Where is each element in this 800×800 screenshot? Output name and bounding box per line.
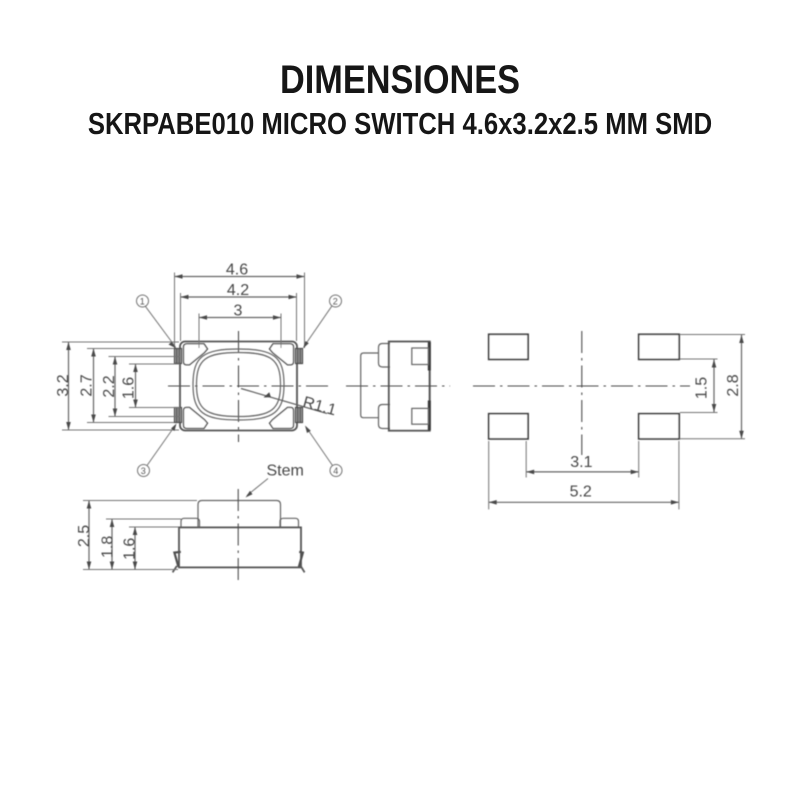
svg-text:4.6: 4.6	[226, 261, 248, 278]
svg-text:1.6: 1.6	[121, 538, 138, 560]
svg-text:3: 3	[234, 303, 243, 320]
svg-text:2.2: 2.2	[101, 375, 118, 397]
svg-text:3: 3	[141, 466, 146, 476]
svg-text:1: 1	[140, 296, 145, 306]
svg-text:3.2: 3.2	[55, 374, 72, 396]
svg-text:R1.1: R1.1	[301, 394, 338, 419]
svg-text:1.6: 1.6	[121, 377, 138, 399]
svg-text:2: 2	[333, 296, 338, 306]
svg-text:3.1: 3.1	[570, 454, 592, 471]
svg-text:5.2: 5.2	[570, 484, 592, 501]
svg-text:2.8: 2.8	[725, 374, 742, 396]
svg-text:2.7: 2.7	[79, 374, 96, 396]
svg-text:1.8: 1.8	[100, 536, 117, 558]
svg-text:2.5: 2.5	[76, 525, 93, 547]
svg-text:4.2: 4.2	[227, 282, 249, 299]
svg-text:1.5: 1.5	[693, 377, 710, 399]
svg-text:Stem: Stem	[267, 463, 304, 480]
svg-text:4: 4	[333, 466, 338, 476]
